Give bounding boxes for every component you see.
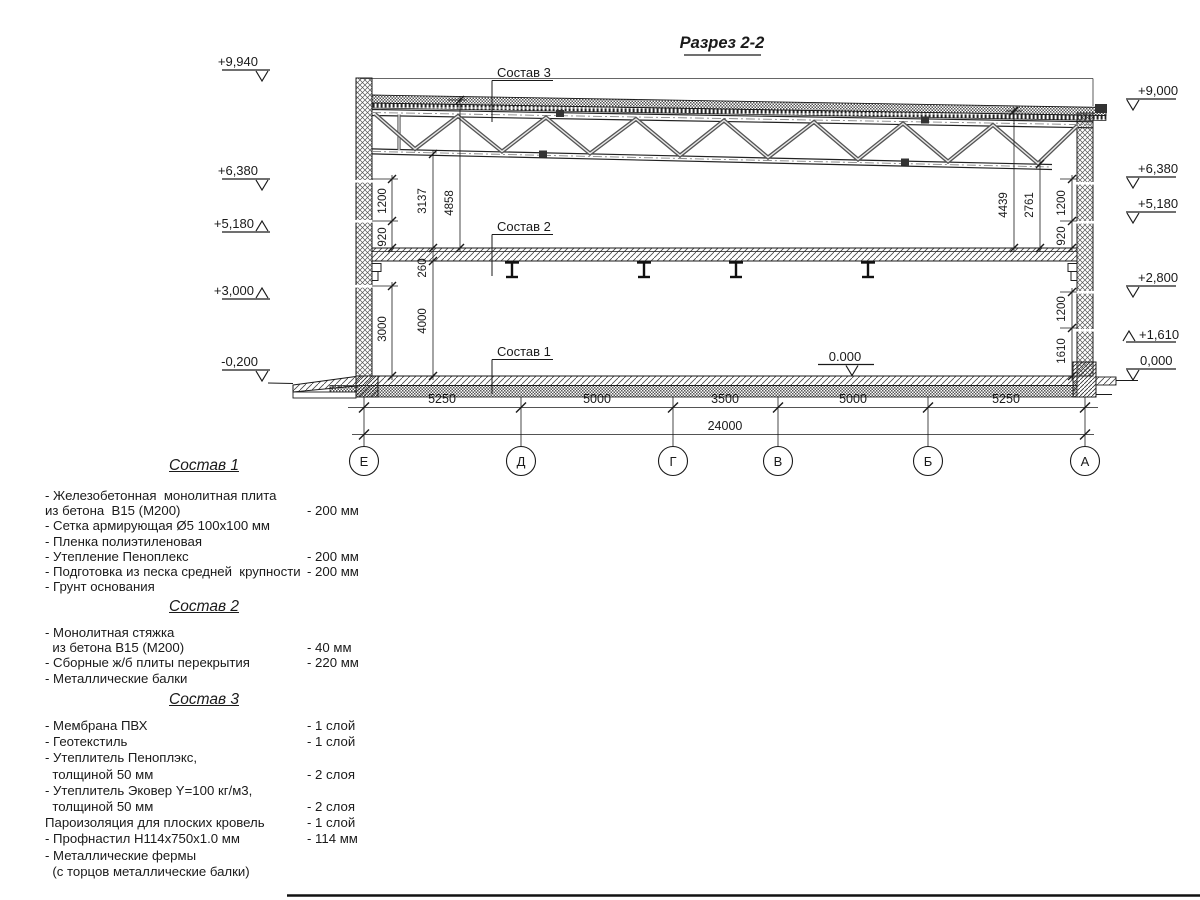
legend-item: - Сетка армирующая Ø5 100х100 мм <box>45 518 363 533</box>
legend-item: Пароизоляция для плоских кровель- 1 слой <box>45 815 363 831</box>
span-dim: 5000 <box>583 392 611 406</box>
total-span-dim: 24000 <box>708 419 743 433</box>
dim-label: 3000 <box>377 316 389 342</box>
legend-item: - Подготовка из песка средней крупности-… <box>45 564 363 579</box>
legend-item-text: (с торцов металлические балки) <box>45 864 307 880</box>
span-dim: 5000 <box>839 392 867 406</box>
legend-item-text: толщиной 50 мм <box>45 767 307 783</box>
legend-item-value: - 1 слой <box>307 815 355 831</box>
legend-item-text: - Утеплитель Эковер Y=100 кг/м3, <box>45 783 307 799</box>
legend-item-text: Пароизоляция для плоских кровель <box>45 815 307 831</box>
legend-item: - Мембрана ПВХ- 1 слой <box>45 718 363 734</box>
elevation-mark: +6,380 <box>1138 161 1178 176</box>
elevation-mark: -0,200 <box>221 354 258 369</box>
legend-sostav-3: Состав 3 - Мембрана ПВХ- 1 слой - Геотек… <box>45 691 363 880</box>
elevation-mark: 0.000 <box>829 349 862 364</box>
axis-label: В <box>774 454 783 469</box>
elevation-mark: +5,180 <box>214 216 254 231</box>
legend-item-text: - Утеплитель Пеноплэкс, <box>45 750 307 766</box>
legend-item-value: - 200 мм <box>307 564 359 579</box>
legend-item: - Утепление Пеноплекс- 200 мм <box>45 549 363 564</box>
legend-heading: Состав 2 <box>45 598 363 616</box>
legend-item: (с торцов металлические балки) <box>45 864 363 880</box>
legend-item-text: из бетона В15 (М200) <box>45 503 307 518</box>
legend-sostav-1: Состав 1 - Железобетонная монолитная пли… <box>45 457 363 594</box>
legend-item-text: - Грунт основания <box>45 579 307 594</box>
legend-item: - Грунт основания <box>45 579 363 594</box>
legend-item-value: - 40 мм <box>307 640 352 655</box>
span-dim: 5250 <box>992 392 1020 406</box>
legend-item-value: - 2 слоя <box>307 799 355 815</box>
axis-label: Г <box>669 454 676 469</box>
legend-item-text: - Мембрана ПВХ <box>45 718 307 734</box>
dim-label: 4000 <box>417 308 429 334</box>
left-footing <box>356 376 378 397</box>
legend-sostav-2: Состав 2 - Монолитная стяжка из бетона В… <box>45 598 363 686</box>
legend-item: - Утеплитель Пеноплэкс, <box>45 750 363 766</box>
legend-item-text: - Сетка армирующая Ø5 100х100 мм <box>45 518 307 533</box>
roof-edge-cap <box>1095 104 1107 113</box>
dim-label: 4439 <box>998 192 1010 218</box>
steel-beam-icons <box>505 263 875 278</box>
axis-label: Б <box>924 454 933 469</box>
legend-item: из бетона В15 (М200)- 40 мм <box>45 640 363 655</box>
legend-item: - Профнастил Н114х750х1.0 мм- 114 мм <box>45 831 363 847</box>
dim-label: 1200 <box>377 188 389 214</box>
legend-item: толщиной 50 мм- 2 слоя <box>45 799 363 815</box>
vertical-dims-right: 4439 2761 1200 920 1200 1610 <box>998 107 1077 380</box>
floor-slab-level2 <box>372 248 1077 281</box>
dim-label: 4858 <box>444 190 456 216</box>
legend-item: толщиной 50 мм- 2 слоя <box>45 767 363 783</box>
callout-label: Состав 3 <box>497 65 551 80</box>
legend-item-text: - Профнастил Н114х750х1.0 мм <box>45 831 307 847</box>
dim-label: 260 <box>417 258 429 277</box>
elevation-mark: +6,380 <box>218 163 258 178</box>
dim-label: 2761 <box>1024 192 1036 218</box>
dim-label: 1200 <box>1056 296 1068 322</box>
left-wall <box>354 78 374 376</box>
right-footing <box>1073 362 1096 397</box>
legend-item-text: - Утепление Пеноплекс <box>45 549 307 564</box>
legend-item-value: - 114 мм <box>307 831 358 847</box>
elevation-marks-left: +9,940 +6,380 +5,180 +3,000 -0,200 <box>214 54 270 381</box>
right-apron <box>1096 377 1116 385</box>
page-title: Разрез 2-2 <box>680 34 765 52</box>
axis-bubbles: Е Д Г В Б А <box>350 447 1100 476</box>
legend-item-text: толщиной 50 мм <box>45 799 307 815</box>
bottom-dimensions: 5250 5000 3500 5000 5250 24000 <box>348 392 1098 447</box>
legend-item-text: - Железобетонная монолитная плита <box>45 488 307 503</box>
legend-item-text: - Металлические фермы <box>45 848 307 864</box>
legend-item: - Монолитная стяжка <box>45 625 363 640</box>
legend-item-text: - Подготовка из песка средней крупности <box>45 564 307 579</box>
dim-label: 3137 <box>417 188 429 214</box>
elevation-mark: +9,000 <box>1138 83 1178 98</box>
roof-assembly <box>372 95 1107 128</box>
legend-item: из бетона В15 (М200)- 200 мм <box>45 503 363 518</box>
elevation-mark: +2,800 <box>1138 270 1178 285</box>
legend-item: - Металлические фермы <box>45 848 363 864</box>
elevation-mark: +5,180 <box>1138 196 1178 211</box>
building-section <box>268 78 1138 398</box>
legend-item: - Пленка полиэтиленовая <box>45 534 363 549</box>
legend-heading: Состав 3 <box>45 691 363 709</box>
legend-item-value: - 220 мм <box>307 655 359 670</box>
vertical-dims-left: 1200 920 3137 4858 260 4000 3000 <box>372 96 467 380</box>
legend-item-value: - 200 мм <box>307 503 359 518</box>
span-dim: 5250 <box>428 392 456 406</box>
legend-item: - Железобетонная монолитная плита <box>45 488 363 503</box>
legend-item: - Утеплитель Эковер Y=100 кг/м3, <box>45 783 363 799</box>
dim-label: 920 <box>1056 226 1068 245</box>
legend-item-text: - Металлические балки <box>45 671 307 686</box>
elevation-marks-right: +9,000 +6,380 +5,180 +2,800 +1,610 0,000 <box>1123 83 1179 380</box>
axis-label: Д <box>517 454 526 469</box>
legend-item: - Геотекстиль- 1 слой <box>45 734 363 750</box>
legend-item-text: - Пленка полиэтиленовая <box>45 534 307 549</box>
dim-label: 1200 <box>1056 190 1068 216</box>
floor-zero-mark: 0.000 <box>818 349 874 376</box>
callout-label: Состав 2 <box>497 219 551 234</box>
composition-callouts: Состав 3 Состав 2 Состав 1 <box>492 65 553 394</box>
legend-item-value: - 200 мм <box>307 549 359 564</box>
span-dim: 3500 <box>711 392 739 406</box>
title-block: Разрез 2-2 <box>680 34 765 55</box>
legend-item-value: - 1 слой <box>307 734 355 750</box>
legend-item-value: - 1 слой <box>307 718 355 734</box>
dim-label: 920 <box>377 227 389 246</box>
elevation-mark: 0,000 <box>1140 353 1173 368</box>
elevation-mark: +9,940 <box>218 54 258 69</box>
drawing-sheet: Разрез 2-2 <box>0 0 1200 900</box>
elevation-mark: +3,000 <box>214 283 254 298</box>
steel-truss <box>372 110 1077 170</box>
axis-label: А <box>1081 454 1090 469</box>
legend-item-text: из бетона В15 (М200) <box>45 640 307 655</box>
legend-item: - Сборные ж/б плиты перекрытия- 220 мм <box>45 655 363 670</box>
legend-item-text: - Геотекстиль <box>45 734 307 750</box>
legend-item-text: - Сборные ж/б плиты перекрытия <box>45 655 307 670</box>
dim-label: 1610 <box>1056 338 1068 364</box>
elevation-mark: +1,610 <box>1139 327 1179 342</box>
callout-label: Состав 1 <box>497 344 551 359</box>
legend-item-text: - Монолитная стяжка <box>45 625 307 640</box>
legend-heading: Состав 1 <box>45 457 363 475</box>
legend-item: - Металлические балки <box>45 671 363 686</box>
right-wall <box>1075 113 1095 376</box>
legend-item-value: - 2 слоя <box>307 767 355 783</box>
